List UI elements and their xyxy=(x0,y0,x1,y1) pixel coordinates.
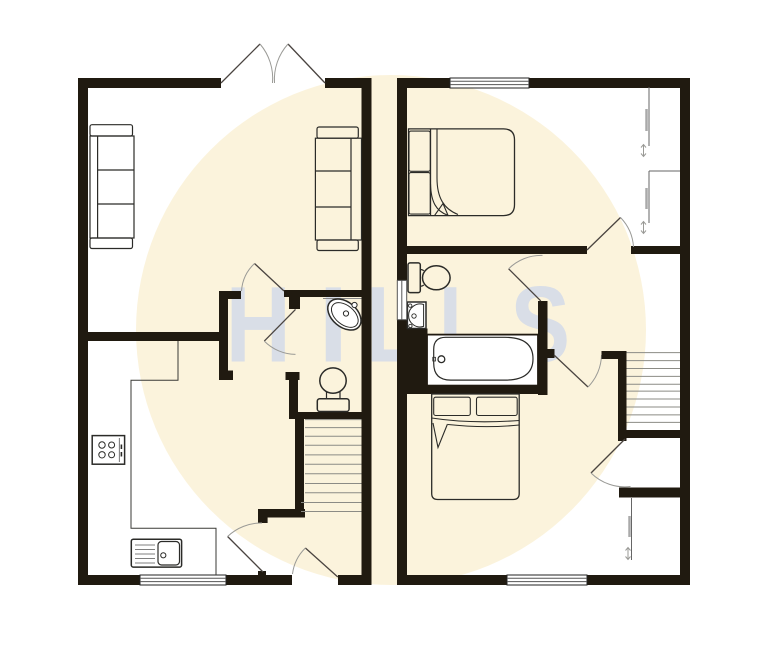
svg-text:H: H xyxy=(226,265,291,385)
